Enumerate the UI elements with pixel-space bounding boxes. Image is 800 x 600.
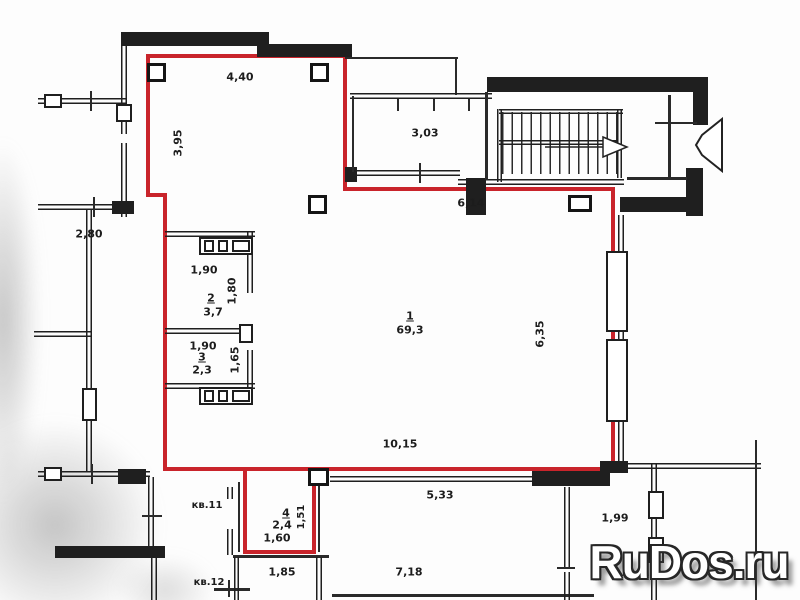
wall-segment: [651, 463, 657, 493]
wall-segment: [625, 463, 761, 469]
room-3-area: 2,3: [192, 365, 212, 376]
wall-segment: [655, 122, 697, 124]
wall-segment: [487, 77, 704, 92]
wall-segment: [618, 215, 624, 252]
watermark: RuDos.ru: [576, 534, 800, 592]
window-block: [116, 104, 132, 122]
wall-segment: [350, 93, 492, 99]
room-1-area: 69,3: [396, 325, 423, 336]
dimension-label: 1,65: [230, 346, 241, 373]
dimension-label: 3,03: [411, 128, 438, 139]
sanitary-fixture: [204, 240, 214, 252]
wall-segment: [34, 331, 92, 337]
door-tick: [91, 464, 93, 484]
window-block: [606, 339, 628, 422]
column: [568, 195, 592, 212]
sanitary-fixture: [204, 390, 214, 402]
wall-segment: [627, 177, 687, 180]
dimension-label: 1,60: [263, 533, 290, 544]
sanitary-fixture: [218, 240, 228, 252]
column: [308, 468, 329, 486]
section-tick: [433, 99, 435, 111]
window-block: [606, 251, 628, 332]
column: [310, 63, 329, 82]
column: [147, 63, 166, 82]
wall-segment: [257, 44, 352, 57]
room-1-number: 1: [406, 311, 414, 322]
dimension-label: 1,90: [190, 265, 217, 276]
room-4-area: 2,4: [272, 520, 292, 531]
apartment-boundary-segment: [243, 467, 247, 554]
door-tick: [228, 580, 230, 597]
wall-segment: [233, 555, 329, 558]
wall-segment: [121, 32, 269, 46]
wall-segment: [121, 143, 127, 217]
floor-plan: 4,40 3,95 3,03 6,14 2,80 1,90 1,80 2 3,7…: [0, 0, 800, 600]
window-block: [82, 388, 97, 421]
wall-segment: [330, 476, 532, 482]
wall-segment: [352, 96, 354, 172]
dimension-label: 3,95: [173, 129, 184, 156]
wall-segment: [668, 95, 671, 180]
section-tick: [397, 99, 399, 111]
wall-segment: [316, 557, 322, 600]
wall-segment: [227, 529, 233, 555]
sanitary-fixture: [239, 324, 253, 343]
section-tick: [468, 99, 470, 111]
wall-segment: [318, 482, 320, 552]
apartment-label-kv11: кв.11: [192, 501, 223, 511]
wall-segment: [618, 420, 624, 471]
room-2-area: 3,7: [203, 307, 223, 318]
column: [308, 195, 327, 214]
wall-segment: [458, 179, 624, 185]
dimension-label: 5,33: [426, 490, 453, 501]
wall-segment: [332, 594, 594, 597]
wall-segment: [532, 471, 610, 486]
dimension-label: 2,80: [75, 229, 102, 240]
dimension-label: 10,15: [383, 439, 418, 450]
room-2-number: 2: [207, 293, 215, 304]
wall-segment: [148, 477, 154, 548]
wall-segment: [564, 572, 570, 600]
scan-smudge: [0, 140, 40, 500]
door-tick: [419, 163, 421, 183]
wall-stub: [44, 467, 62, 481]
wall-segment: [234, 557, 239, 600]
wall-segment: [227, 487, 233, 499]
sanitary-fixture: [232, 390, 250, 402]
wall-segment: [238, 482, 240, 552]
wall-segment: [485, 92, 488, 180]
apartment-boundary-segment: [243, 550, 316, 554]
wall-stub: [44, 94, 62, 108]
dimension-label: 1,99: [601, 513, 628, 524]
door-line: [214, 588, 250, 591]
stairs-direction-arrow: [545, 134, 630, 160]
apartment-label-kv12: кв.12: [194, 578, 225, 588]
door-tick: [142, 515, 162, 517]
window-block: [648, 491, 664, 519]
dimension-label: 6,14: [457, 198, 484, 209]
door-tick: [90, 91, 92, 111]
entrance-door: [692, 117, 724, 173]
room-3-number: 3: [198, 352, 206, 363]
dimension-label: 4,40: [226, 72, 253, 83]
wall-segment: [620, 197, 692, 212]
dimension-label: 1,51: [297, 505, 307, 530]
stair-rail: [497, 109, 502, 182]
wall-segment: [345, 57, 458, 59]
wall-segment: [151, 558, 157, 600]
wall-segment: [352, 170, 460, 176]
sanitary-fixture: [232, 240, 250, 252]
sanitary-fixture: [218, 390, 228, 402]
door-tick: [93, 197, 95, 217]
dimension-label: 1,85: [268, 567, 295, 578]
dimension-label: 1,80: [227, 277, 238, 304]
dimension-label: 6,35: [535, 320, 546, 347]
door-tick: [557, 567, 575, 569]
wall-segment: [564, 487, 570, 568]
room-4-number: 4: [282, 508, 290, 519]
wall-segment: [38, 204, 118, 210]
dimension-label: 7,18: [395, 567, 422, 578]
wall-segment: [455, 57, 457, 95]
scan-smudge: [0, 420, 160, 600]
